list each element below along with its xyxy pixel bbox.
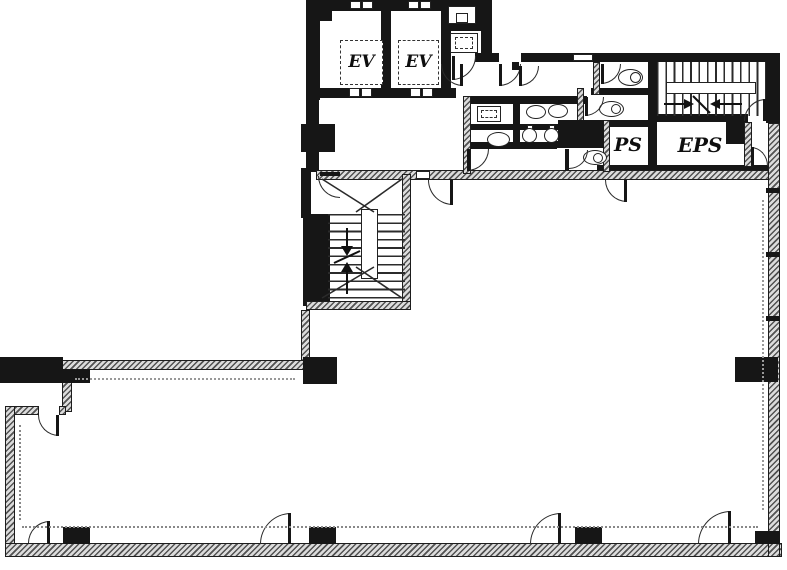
window-mullion <box>766 252 780 257</box>
urinal <box>522 128 537 143</box>
column <box>309 527 336 544</box>
wall-segment <box>475 53 483 62</box>
door-arc <box>519 66 539 86</box>
wall-segment <box>441 53 450 62</box>
wall-segment <box>766 53 780 123</box>
door-leaf <box>56 415 59 436</box>
hatched-wall <box>577 88 584 122</box>
door-leaf <box>47 521 50 543</box>
window-segment <box>416 171 430 179</box>
urinal <box>544 128 559 143</box>
door-leaf <box>460 64 463 86</box>
electrical-shaft-label: EPS <box>655 135 745 155</box>
wall-segment <box>483 53 499 62</box>
window-mullion <box>766 188 780 193</box>
elevator-door-sill <box>349 88 360 97</box>
door-leaf <box>519 66 522 86</box>
door-leaf <box>467 149 470 171</box>
wall-texture-dots <box>22 526 758 528</box>
wall-segment <box>513 96 520 148</box>
elevator-door-sill <box>410 88 421 97</box>
column <box>735 357 778 382</box>
hatched-wall <box>5 543 782 557</box>
wall-texture-dots <box>19 425 21 520</box>
wash-basin <box>487 132 510 147</box>
hatched-wall <box>306 301 411 310</box>
door-leaf <box>288 513 291 544</box>
wall-segment <box>591 88 651 95</box>
door-leaf <box>601 64 604 84</box>
window-mullion <box>766 316 780 321</box>
wall-segment <box>648 53 657 122</box>
door-arc <box>601 64 621 84</box>
door-leaf <box>558 513 561 544</box>
wall-segment <box>306 88 456 98</box>
window-segment <box>573 54 593 61</box>
door-leaf <box>565 149 569 170</box>
door-arc <box>260 513 291 544</box>
wall-texture-dots <box>762 200 764 510</box>
slop-sink-basin <box>456 13 468 23</box>
door-leaf <box>499 64 502 86</box>
elevator-label: EV <box>398 54 439 71</box>
vent-sill <box>350 1 361 9</box>
pipe-shaft-label: PS <box>604 136 652 155</box>
hatched-wall <box>593 62 600 95</box>
door-leaf <box>624 180 627 202</box>
pipe-shaft-block <box>558 120 604 148</box>
floor-plan: EV EV <box>0 0 787 570</box>
wall-segment <box>303 214 330 306</box>
column <box>63 527 90 544</box>
column <box>301 124 335 152</box>
door-leaf <box>751 147 754 166</box>
door-arc <box>467 149 489 171</box>
vent-sill <box>362 1 373 9</box>
door-leaf <box>320 172 340 176</box>
wall-segment <box>301 168 311 218</box>
wall-segment <box>465 142 557 149</box>
wall-texture-dots <box>75 378 295 380</box>
elevator-label: EV <box>340 54 383 71</box>
wall-segment <box>465 124 515 130</box>
vent-sill <box>408 1 419 9</box>
stair-stringer <box>361 209 378 279</box>
hatched-wall <box>62 360 308 370</box>
elevator-door-sill <box>422 88 433 97</box>
hatched-wall <box>316 170 773 180</box>
hatched-wall <box>301 310 310 362</box>
toilet-seat <box>611 104 621 114</box>
wall-segment <box>521 53 773 62</box>
wall-segment <box>465 96 587 104</box>
column <box>303 357 337 384</box>
vanity-counter-inner <box>481 110 497 118</box>
wall-segment <box>318 9 332 21</box>
stair-diagonal <box>356 179 402 212</box>
hatched-wall <box>59 406 66 415</box>
column <box>575 527 602 544</box>
slab-block <box>63 369 90 383</box>
door-leaf <box>763 99 766 121</box>
slab-block <box>0 357 63 383</box>
service-fixture-inner <box>455 37 473 49</box>
door-arc <box>499 64 521 86</box>
elevator-door-sill <box>361 88 372 97</box>
hatched-wall <box>5 406 15 557</box>
wash-basin <box>548 104 568 118</box>
door-arc <box>530 513 561 544</box>
stair-landing <box>666 82 756 94</box>
door-arc <box>569 150 588 169</box>
door-leaf <box>450 180 453 205</box>
toilet-seat <box>593 153 603 163</box>
wash-basin <box>526 105 546 119</box>
door-arc <box>318 176 340 198</box>
column <box>755 531 780 544</box>
vent-sill <box>420 1 431 9</box>
door-leaf <box>585 97 588 116</box>
toilet-seat <box>630 72 641 83</box>
